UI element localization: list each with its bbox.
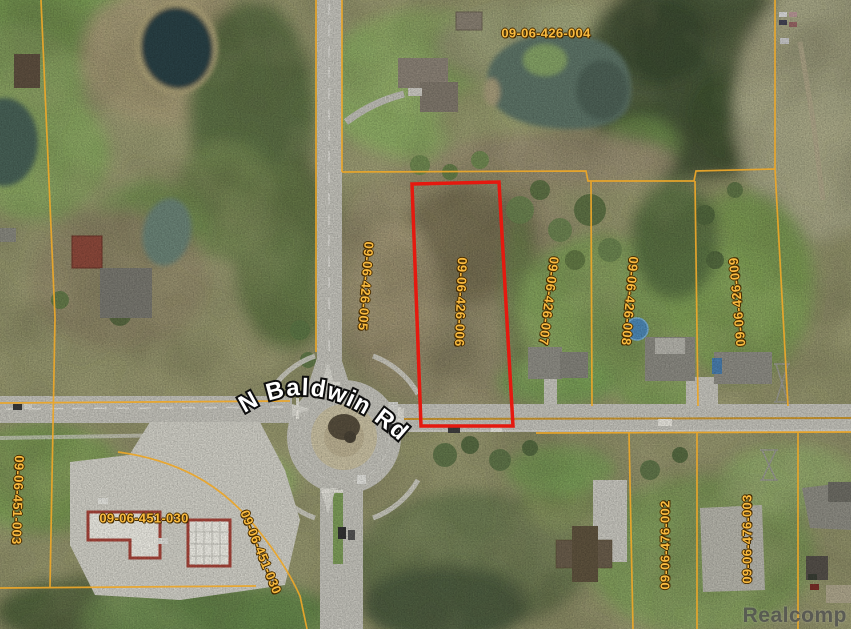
realcomp-watermark: Realcomp	[743, 604, 847, 628]
parcel-map-image: N Baldwin Rd 09-06-426-004 09-06-426-005…	[0, 0, 851, 629]
aerial-imagery: N Baldwin Rd	[0, 0, 851, 629]
photo-grain	[0, 0, 851, 629]
